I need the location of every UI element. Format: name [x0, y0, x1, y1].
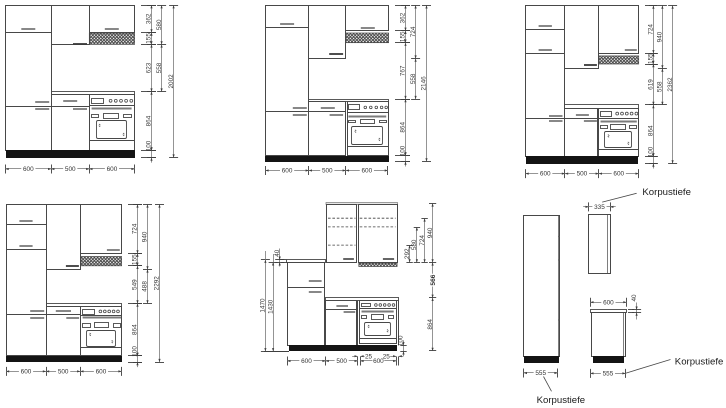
svg-text:558: 558 [156, 62, 163, 73]
svg-text:600: 600 [21, 369, 32, 376]
svg-text:500: 500 [336, 358, 347, 365]
svg-text:2146: 2146 [421, 76, 428, 91]
svg-text:488: 488 [142, 281, 149, 292]
svg-text:600: 600 [23, 166, 34, 173]
svg-text:580: 580 [156, 19, 163, 30]
svg-text:155: 155 [648, 53, 655, 64]
svg-text:600: 600 [362, 168, 373, 175]
svg-text:600: 600 [603, 299, 614, 306]
svg-text:2292: 2292 [154, 276, 161, 291]
svg-text:724: 724 [648, 24, 655, 35]
svg-text:500: 500 [65, 166, 76, 173]
svg-text:Korpustiefe: Korpustiefe [675, 356, 724, 367]
svg-text:100: 100 [648, 146, 655, 157]
svg-text:25: 25 [365, 353, 373, 360]
svg-text:600: 600 [282, 168, 293, 175]
svg-text:940: 940 [427, 227, 434, 238]
svg-text:558: 558 [410, 73, 417, 84]
svg-text:500: 500 [58, 369, 69, 376]
svg-text:500: 500 [322, 168, 333, 175]
svg-text:100: 100 [132, 346, 139, 357]
svg-text:940: 940 [142, 231, 149, 242]
svg-text:100: 100 [398, 335, 405, 346]
svg-text:Korpustiefe: Korpustiefe [642, 187, 691, 198]
svg-text:600: 600 [301, 358, 312, 365]
svg-text:940: 940 [657, 31, 664, 42]
svg-text:600: 600 [107, 166, 118, 173]
svg-text:580: 580 [411, 239, 418, 250]
svg-text:40: 40 [631, 294, 638, 302]
svg-text:155: 155 [146, 33, 153, 44]
svg-text:566: 566 [430, 274, 437, 285]
svg-text:864: 864 [132, 324, 139, 335]
svg-text:864: 864 [427, 319, 434, 330]
svg-text:1470: 1470 [260, 298, 267, 313]
svg-text:549: 549 [132, 279, 139, 290]
svg-text:362: 362 [400, 12, 407, 23]
svg-text:2002: 2002 [168, 74, 175, 89]
svg-text:864: 864 [648, 125, 655, 136]
svg-text:600: 600 [96, 369, 107, 376]
svg-text:25: 25 [383, 353, 391, 360]
svg-text:864: 864 [400, 122, 407, 133]
svg-text:724: 724 [132, 223, 139, 234]
svg-text:155: 155 [132, 254, 139, 265]
svg-text:767: 767 [400, 65, 407, 76]
svg-text:864: 864 [146, 115, 153, 126]
svg-text:40: 40 [274, 249, 281, 257]
svg-text:335: 335 [594, 204, 605, 211]
svg-text:100: 100 [400, 145, 407, 156]
svg-text:500: 500 [577, 171, 588, 178]
svg-text:724: 724 [410, 26, 417, 37]
svg-text:100: 100 [146, 140, 153, 151]
svg-text:623: 623 [146, 62, 153, 73]
svg-text:555: 555 [535, 370, 546, 377]
svg-text:2362: 2362 [667, 77, 674, 92]
svg-text:155: 155 [400, 31, 407, 42]
svg-text:558: 558 [657, 81, 664, 92]
svg-text:1430: 1430 [267, 299, 274, 314]
svg-text:619: 619 [648, 79, 655, 90]
svg-text:Korpustiefe: Korpustiefe [537, 395, 586, 406]
svg-text:362: 362 [146, 13, 153, 24]
svg-text:600: 600 [540, 171, 551, 178]
svg-text:600: 600 [613, 171, 624, 178]
svg-text:292: 292 [404, 248, 411, 259]
svg-text:724: 724 [419, 235, 426, 246]
svg-text:555: 555 [603, 371, 614, 378]
